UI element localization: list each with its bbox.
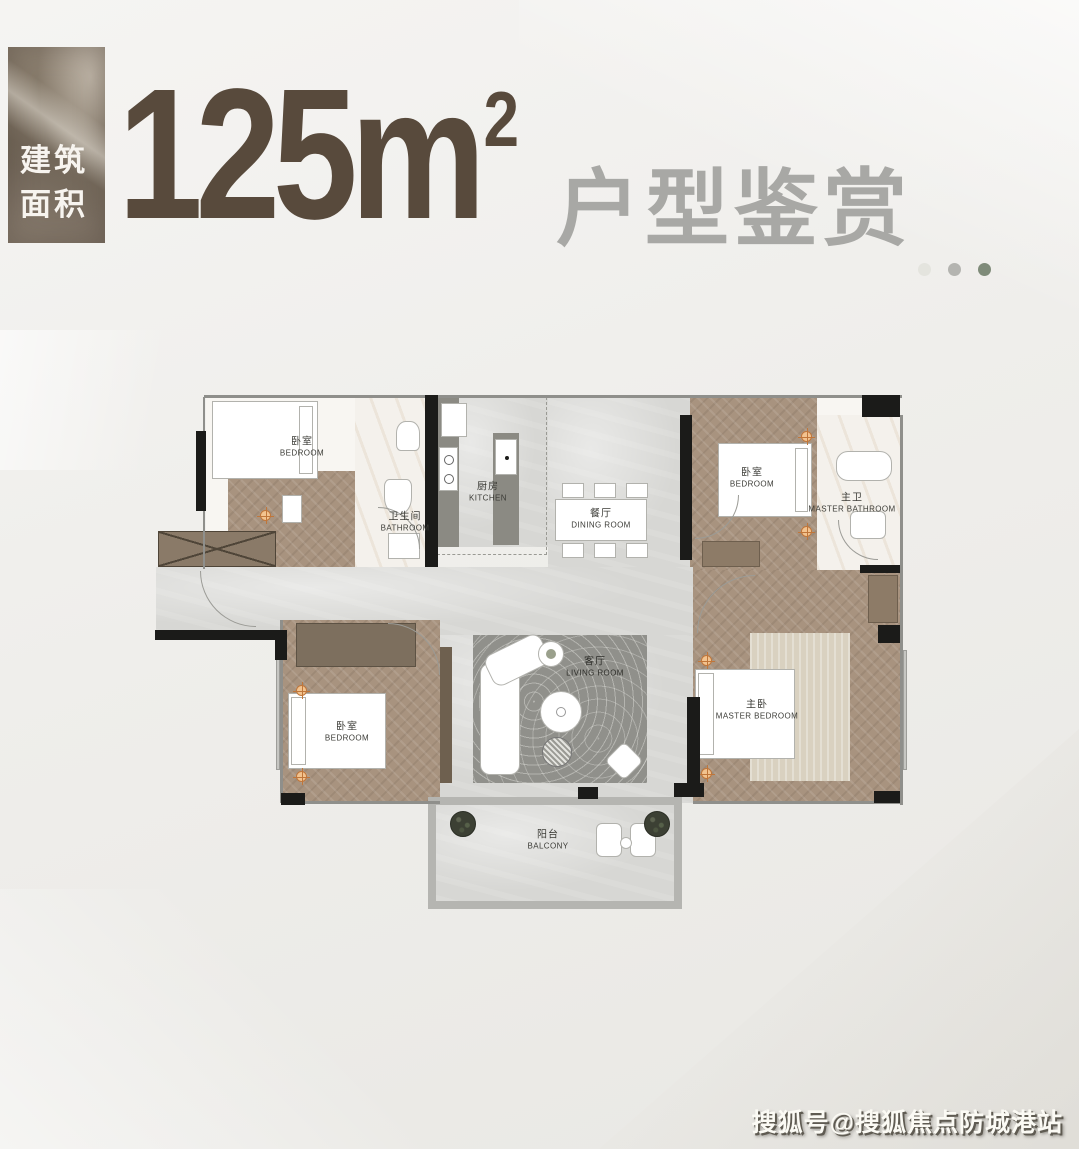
room-label-living: 客厅 LIVING ROOM bbox=[566, 655, 624, 678]
room-label-cn: 卫生间 bbox=[381, 510, 430, 523]
coffee-table bbox=[540, 691, 582, 733]
wall-entry-bottom bbox=[155, 630, 281, 640]
balcony-chair-1 bbox=[596, 823, 622, 857]
page-title: 户型鉴赏 bbox=[556, 142, 912, 263]
room-label-cn: 卧室 bbox=[325, 720, 369, 733]
room-label-cn: 客厅 bbox=[566, 655, 624, 668]
downlight-icon-bedroom-bottom-left-2 bbox=[296, 771, 307, 782]
room-label-balcony: 阳台 BALCONY bbox=[527, 828, 568, 851]
plant-foliage bbox=[546, 649, 556, 659]
bedroom-top-right-cabinet bbox=[702, 541, 760, 567]
wall-balcony-left-pillar bbox=[578, 787, 598, 799]
room-label-en: BEDROOM bbox=[730, 479, 774, 489]
master-bedroom-cabinet bbox=[868, 575, 898, 623]
room-label-en: BATHROOM bbox=[381, 523, 430, 533]
master-bed-pillow bbox=[698, 673, 714, 755]
bedroom-top-left-desk bbox=[282, 495, 302, 523]
room-label-en: BEDROOM bbox=[325, 733, 369, 743]
dining-chair-3 bbox=[626, 483, 648, 498]
downlight-icon-bedroom-top-right-1 bbox=[801, 431, 812, 442]
bed-top-right-pillow bbox=[795, 448, 808, 512]
wall-bathroom-kitchen bbox=[425, 395, 438, 567]
wall-master-right-bottom bbox=[874, 791, 900, 803]
room-label-cn: 厨房 bbox=[469, 480, 507, 493]
room-label-bathroom: 卫生间 BATHROOM bbox=[381, 510, 430, 533]
carousel-dot-2[interactable] bbox=[948, 263, 961, 276]
living-room-plant bbox=[538, 641, 564, 667]
wall-pillar-top-left bbox=[196, 431, 206, 511]
area-badge-label: 建筑 面积 bbox=[20, 139, 88, 227]
room-label-dining: 餐厅 DINING ROOM bbox=[571, 507, 631, 530]
area-exponent: 2 bbox=[484, 80, 520, 158]
room-label-kitchen: 厨房 KITCHEN bbox=[469, 480, 507, 503]
entry-cabinet bbox=[158, 531, 276, 567]
wall-master-right-mid bbox=[878, 625, 900, 643]
room-label-bedroom-top-left: 卧室 BEDROOM bbox=[280, 435, 324, 458]
room-label-cn: 主卫 bbox=[808, 491, 895, 504]
room-label-cn: 主卧 bbox=[716, 698, 799, 711]
balcony-side-table bbox=[620, 837, 632, 849]
downlight-icon-bedroom-top-right-2 bbox=[801, 526, 812, 537]
kitchen-open-boundary bbox=[437, 397, 547, 555]
room-label-bedroom-top-right: 卧室 BEDROOM bbox=[730, 466, 774, 489]
area-digits: 125 bbox=[118, 51, 350, 258]
bed-bottom-left-pillow bbox=[291, 697, 306, 765]
wall-master-bath-top bbox=[862, 395, 900, 417]
room-label-en: DINING ROOM bbox=[571, 520, 631, 530]
area-number: 125m bbox=[118, 62, 479, 248]
room-label-bedroom-bottom-left: 卧室 BEDROOM bbox=[325, 720, 369, 743]
area-badge-line1: 建筑 bbox=[20, 139, 88, 183]
living-room-pouf bbox=[542, 737, 572, 767]
dining-chair-1 bbox=[562, 483, 584, 498]
dining-chair-6 bbox=[626, 543, 648, 558]
room-label-cn: 卧室 bbox=[280, 435, 324, 448]
downlight-icon-master-2 bbox=[701, 768, 712, 779]
room-label-cn: 餐厅 bbox=[571, 507, 631, 520]
bedroom-bottom-left-wall-bottom bbox=[283, 801, 440, 804]
downlight-icon-bedroom-top-left bbox=[260, 510, 271, 521]
master-bedroom-window bbox=[903, 650, 907, 770]
living-room-media-cabinet bbox=[440, 647, 452, 783]
outer-wall-top bbox=[204, 395, 902, 398]
dining-chair-5 bbox=[594, 543, 616, 558]
wall-entry-corner bbox=[275, 630, 287, 660]
room-label-master-bedroom: 主卧 MASTER BEDROOM bbox=[716, 698, 799, 721]
wall-bedroom-bottom-corner bbox=[281, 793, 305, 805]
carousel-dots bbox=[918, 263, 991, 276]
room-label-en: BALCONY bbox=[527, 841, 568, 851]
master-bathroom-entry-floor bbox=[817, 397, 862, 417]
area-badge-line2: 面积 bbox=[20, 183, 88, 227]
carousel-dot-3[interactable] bbox=[978, 263, 991, 276]
bathroom-sink bbox=[396, 421, 420, 451]
room-label-en: BEDROOM bbox=[280, 448, 324, 458]
master-bathtub bbox=[836, 451, 892, 481]
balcony-plant-right bbox=[644, 811, 670, 837]
wall-dining-bedroom bbox=[680, 415, 692, 560]
wall-master-right-top bbox=[860, 565, 900, 573]
room-label-cn: 阳台 bbox=[527, 828, 568, 841]
floor-plan: 卧室 BEDROOM 卫生间 BATHROOM 厨房 KITCHEN 餐厅 DI… bbox=[150, 395, 915, 925]
bedroom-bottom-left-window bbox=[276, 650, 280, 770]
room-label-master-bathroom: 主卫 MASTER BATHROOM bbox=[808, 491, 895, 514]
watermark-text: 搜狐号@搜狐焦点防城港站 bbox=[752, 1103, 1063, 1139]
balcony-plant-left bbox=[450, 811, 476, 837]
background-shape-bottom-left bbox=[0, 889, 420, 1149]
wall-living-master-divider bbox=[687, 697, 700, 787]
room-label-en: MASTER BATHROOM bbox=[808, 504, 895, 514]
area-badge-image: 建筑 面积 bbox=[8, 47, 105, 243]
room-label-en: LIVING ROOM bbox=[566, 668, 624, 678]
area-unit: m bbox=[350, 51, 478, 258]
room-label-en: MASTER BEDROOM bbox=[716, 711, 799, 721]
dining-chair-2 bbox=[594, 483, 616, 498]
coffee-table-center bbox=[556, 707, 566, 717]
downlight-icon-bedroom-bottom-left-1 bbox=[296, 685, 307, 696]
room-label-en: KITCHEN bbox=[469, 493, 507, 503]
area-value: 125m 2 bbox=[118, 62, 519, 252]
dining-chair-4 bbox=[562, 543, 584, 558]
downlight-icon-master-1 bbox=[701, 655, 712, 666]
room-label-cn: 卧室 bbox=[730, 466, 774, 479]
carousel-dot-1[interactable] bbox=[918, 263, 931, 276]
master-bedroom-wall-bottom bbox=[693, 801, 900, 804]
